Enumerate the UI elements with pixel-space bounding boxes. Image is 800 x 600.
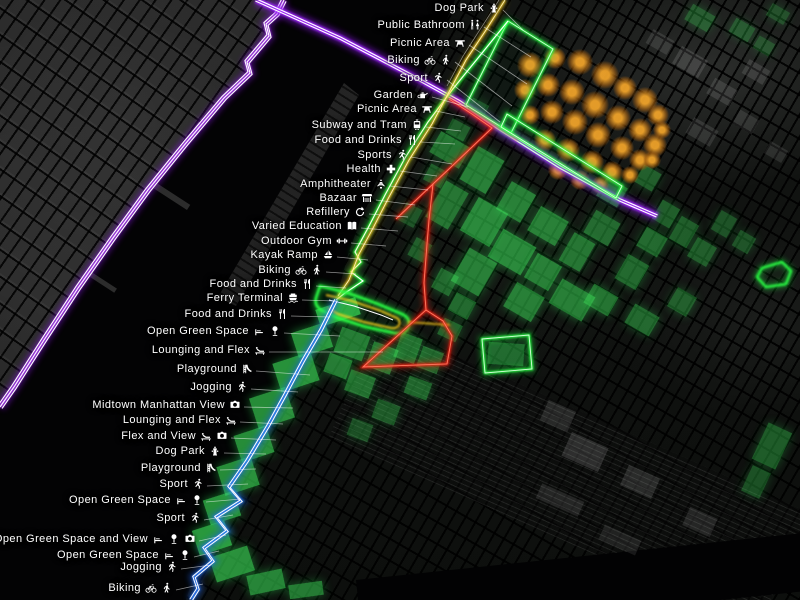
green-highlight-block <box>291 322 333 358</box>
amenity-label: Picnic Area <box>357 103 433 115</box>
label-leader-line <box>361 228 398 231</box>
green-highlight-block <box>766 3 790 25</box>
amenity-label-text: Biking <box>258 264 291 276</box>
label-leader-line <box>436 111 465 117</box>
purple-promenade-route <box>0 0 286 408</box>
amenity-label: Kayak Ramp <box>251 249 334 261</box>
pier <box>89 272 117 293</box>
label-leader-line <box>455 62 512 106</box>
foliage-cluster <box>567 49 593 75</box>
green-highlight-block <box>559 232 596 272</box>
foliage-cluster <box>601 161 623 183</box>
green-highlight-block <box>596 176 628 207</box>
blue-waterfront-route <box>190 299 338 600</box>
green-highlight-block <box>460 197 508 247</box>
restroom-icon <box>469 19 481 31</box>
amenity-label: Garden <box>374 89 429 101</box>
amenity-label-text: Picnic Area <box>390 37 450 49</box>
amenity-label-text: Picnic Area <box>357 103 417 115</box>
slide-icon <box>241 363 253 375</box>
foliage-cluster <box>605 105 631 131</box>
light-roof-block <box>540 400 576 432</box>
label-leader-line <box>469 45 527 84</box>
amenity-label-text: Public Bathroom <box>378 19 465 31</box>
green-highlight-block <box>496 181 536 223</box>
lounge-chair-icon <box>225 414 237 426</box>
athlete-icon <box>189 512 201 524</box>
amenity-label-text: Sports <box>358 149 393 161</box>
green-highlight-block <box>527 206 569 246</box>
amenity-label: Open Green Space <box>69 494 203 506</box>
amenity-label: Dog Park <box>435 2 500 14</box>
hydrant-icon <box>488 2 500 14</box>
label-leader-line <box>411 157 452 164</box>
label-leader-line <box>204 515 233 520</box>
green-highlight-block <box>753 35 776 56</box>
manhattan-landmass <box>0 0 800 600</box>
green-highlight-block <box>460 146 505 194</box>
market-stall-icon <box>361 192 373 204</box>
green-highlight-block <box>667 287 697 317</box>
amenity-label: Outdoor Gym <box>261 235 348 247</box>
amenity-label: Jogging <box>190 381 248 393</box>
green-highlight-block <box>272 352 319 393</box>
amenity-label: Sports <box>358 149 409 161</box>
slide-icon <box>205 462 217 474</box>
amenity-label-text: Subway and Tram <box>312 119 407 131</box>
map-canvas: Dog ParkPublic BathroomPicnic AreaBiking… <box>0 0 800 600</box>
foliage-cluster <box>591 61 619 89</box>
railyard <box>329 322 800 600</box>
medical-cross-icon <box>385 163 397 175</box>
light-roof-block <box>620 465 660 499</box>
green-highlight-block <box>752 422 792 469</box>
green-park-loops <box>466 21 791 373</box>
green-highlight-block <box>431 268 459 297</box>
picnic-table-icon <box>454 37 466 49</box>
green-highlight-block <box>669 216 699 249</box>
label-leader-line <box>256 371 310 375</box>
amenity-label-text: Garden <box>374 89 413 101</box>
light-roof-block <box>536 483 585 516</box>
amenity-label: Lounging and Flex <box>123 414 237 426</box>
green-highlight-block <box>407 237 432 263</box>
amenity-label: Open Green Space <box>57 549 191 561</box>
label-leader-line <box>302 300 336 301</box>
utensils-icon <box>276 308 288 320</box>
label-leader-line <box>316 286 346 288</box>
green-highlight-block <box>404 375 433 400</box>
foliage-cluster <box>628 118 652 142</box>
amenity-label-text: Open Green Space <box>57 549 159 561</box>
green-highlight-block <box>425 180 469 229</box>
amenity-label: Subway and Tram <box>312 119 423 131</box>
amenity-label: Amphitheater <box>300 178 387 190</box>
foliage-cluster <box>653 121 671 139</box>
green-highlight-block <box>684 4 716 33</box>
green-highlight-block <box>636 226 668 257</box>
junction-magenta-segment <box>468 108 518 140</box>
amenity-label-text: Biking <box>387 54 420 66</box>
label-leader-line <box>194 551 219 557</box>
amenity-label: Open Green Space <box>147 325 281 337</box>
green-highlight-block <box>246 568 285 595</box>
bench-icon <box>163 549 175 561</box>
light-roof-block <box>598 525 641 556</box>
green-highlight-block <box>487 342 524 366</box>
amenity-label: Food and Drinks <box>185 308 288 320</box>
foliage-cluster <box>647 104 669 126</box>
green-highlight-block <box>429 131 470 169</box>
amenity-label: Playground <box>141 462 217 474</box>
green-highlight-block <box>652 199 680 228</box>
green-highlight-block <box>524 253 562 291</box>
amenity-label: Food and Drinks <box>210 278 313 290</box>
athlete-icon <box>192 478 204 490</box>
label-leader-line <box>199 535 226 541</box>
amenity-label-text: Food and Drinks <box>315 134 402 146</box>
green-highlight-block <box>333 327 370 362</box>
green-highlight-block <box>192 520 232 555</box>
amenity-label-text: Varied Education <box>252 220 342 232</box>
green-highlight-block <box>347 418 374 442</box>
bench-icon <box>152 533 164 545</box>
tree-icon <box>179 549 191 561</box>
label-leader-line <box>231 438 276 440</box>
foliage-cluster <box>610 136 634 160</box>
amenity-label-text: Midtown Manhattan View <box>92 399 225 411</box>
amenity-label: Open Green Space and View <box>0 533 196 545</box>
label-leader-line <box>176 584 203 590</box>
light-roof-block <box>742 59 771 85</box>
athlete-icon <box>396 149 408 161</box>
lounge-chair-icon <box>200 430 212 442</box>
amenity-label: Playground <box>177 363 253 375</box>
foliage-cluster <box>621 166 639 184</box>
jogger-icon <box>166 561 178 573</box>
green-highlight-block <box>687 237 717 267</box>
bicycle-icon <box>145 582 157 594</box>
boat-icon <box>322 249 334 261</box>
green-highlight-block <box>323 352 352 379</box>
green-highlight-block <box>448 292 477 320</box>
green-highlight-block <box>711 210 738 238</box>
label-leader-lines <box>0 0 800 600</box>
hydrant-icon <box>209 445 221 457</box>
light-roof-block <box>682 507 718 537</box>
label-leader-line <box>224 453 266 454</box>
foliage-cluster <box>643 133 667 157</box>
newtown-creek-water <box>356 532 800 600</box>
athlete-icon <box>432 72 444 84</box>
foliage-cluster <box>632 87 658 113</box>
green-highlight-block <box>437 318 463 343</box>
amenity-label: Sport <box>156 512 201 524</box>
light-roof-block <box>732 110 759 135</box>
amenity-label-text: Dog Park <box>435 2 484 14</box>
tree-icon <box>269 325 281 337</box>
amenity-label-text: Lounging and Flex <box>152 344 250 356</box>
amenity-label-text: Playground <box>177 363 237 375</box>
ferry-icon <box>287 292 299 304</box>
tree-icon <box>191 494 203 506</box>
bicycle-icon <box>424 54 436 66</box>
dumbbell-icon <box>336 235 348 247</box>
amenity-label-text: Ferry Terminal <box>207 292 283 304</box>
foliage-cluster <box>643 151 661 169</box>
green-highlight-block <box>234 425 275 462</box>
amenity-label-text: Kayak Ramp <box>251 249 318 261</box>
amenity-label-text: Sport <box>156 512 185 524</box>
camera-icon <box>216 430 228 442</box>
amenity-label-text: Amphitheater <box>300 178 371 190</box>
green-highlight-block <box>423 163 449 188</box>
green-highlight-block <box>624 303 659 336</box>
amenity-label: Health <box>347 163 398 175</box>
foliage-cluster <box>520 105 540 125</box>
highlighted-blocks-layer <box>0 0 800 600</box>
label-leader-line <box>181 565 211 569</box>
utensils-icon <box>301 278 313 290</box>
red-outline-route <box>363 99 492 367</box>
foliage-cluster <box>591 176 609 194</box>
amenity-label: Varied Education <box>252 220 358 232</box>
light-roof-block <box>672 46 708 78</box>
foliage-cluster <box>629 149 651 171</box>
foliage-cluster <box>556 138 580 162</box>
label-leader-line <box>503 10 523 30</box>
amenity-label: Sport <box>159 478 204 490</box>
green-highlight-block <box>615 254 650 290</box>
amenity-label-text: Food and Drinks <box>185 308 272 320</box>
pedestrian-icon <box>161 582 173 594</box>
tree-icon <box>168 533 180 545</box>
amenity-label: Ferry Terminal <box>207 292 299 304</box>
foliage-cluster <box>517 52 543 78</box>
amenity-label: Dog Park <box>156 445 221 457</box>
green-highlight-block <box>393 332 423 364</box>
label-leader-line <box>337 257 368 260</box>
amenity-label-text: Jogging <box>120 561 162 573</box>
camera-icon <box>229 399 241 411</box>
green-highlight-block <box>365 341 398 374</box>
amenity-label: Picnic Area <box>390 37 466 49</box>
green-highlight-block <box>203 491 241 526</box>
bench-icon <box>253 325 265 337</box>
label-leader-line <box>432 97 468 107</box>
queens-landmass <box>0 0 800 600</box>
amenity-label: Refillery <box>306 206 366 218</box>
light-roof-block <box>561 432 608 472</box>
foliage-cluster <box>514 79 536 101</box>
label-leader-line <box>447 80 500 122</box>
amenity-label-text: Bazaar <box>319 192 357 204</box>
bench-icon <box>175 494 187 506</box>
foliage-cluster <box>559 79 585 105</box>
amenity-label-text: Jogging <box>190 381 232 393</box>
amenity-label: Public Bathroom <box>378 19 481 31</box>
picnic-table-icon <box>421 103 433 115</box>
amenity-label-text: Food and Drinks <box>210 278 297 290</box>
amenity-label-text: Health <box>347 163 382 175</box>
amenity-label: Food and Drinks <box>315 134 418 146</box>
green-highlight-block <box>503 282 545 322</box>
label-leader-line <box>207 484 248 486</box>
amenity-label: Biking <box>108 582 173 594</box>
foliage-cluster <box>570 170 590 190</box>
label-leader-line <box>376 200 415 205</box>
pier <box>152 182 190 210</box>
label-leader-line <box>369 214 408 217</box>
yellow-connector-route <box>338 0 505 296</box>
foliage-cluster <box>536 73 560 97</box>
green-highlight-block <box>288 581 324 600</box>
amenity-label-text: Sport <box>159 478 188 490</box>
pedestrian-icon <box>311 264 323 276</box>
amenity-labels-layer: Dog ParkPublic BathroomPicnic AreaBiking… <box>0 0 800 600</box>
label-leader-line <box>390 186 428 190</box>
amenity-label-text: Flex and View <box>121 430 196 442</box>
bicycle-icon <box>295 264 307 276</box>
amenity-label-text: Open Green Space and View <box>0 533 148 545</box>
green-highlight-block <box>583 210 620 247</box>
foliage-cluster <box>544 47 566 69</box>
green-highlight-block <box>741 465 771 499</box>
green-highlight-block <box>728 18 755 43</box>
label-leader-line <box>244 407 293 408</box>
amenity-label-text: Open Green Space <box>69 494 171 506</box>
light-roof-block <box>706 78 738 107</box>
foliage-cluster <box>613 76 637 100</box>
foliage-cluster <box>562 109 588 135</box>
green-highlight-block <box>397 202 422 228</box>
watering-can-icon <box>417 89 429 101</box>
purple-bridge-route <box>255 0 657 217</box>
foliage-cluster <box>585 122 611 148</box>
label-leader-line <box>206 499 241 502</box>
foliage-cluster <box>548 160 568 180</box>
roosevelt-island <box>0 0 800 600</box>
green-highlight-block <box>249 387 295 429</box>
utensils-icon <box>406 134 418 146</box>
green-highlight-block <box>416 346 444 374</box>
green-highlight-block <box>732 230 757 255</box>
label-leader-line <box>220 469 256 470</box>
lounge-chair-icon <box>254 344 266 356</box>
label-leader-line <box>240 422 283 424</box>
label-leader-line <box>351 243 386 246</box>
camera-icon <box>184 533 196 545</box>
amenity-label-text: Outdoor Gym <box>261 235 332 247</box>
light-roof-block <box>764 141 788 163</box>
label-leader-line <box>421 142 455 144</box>
amenity-label: Jogging <box>120 561 178 573</box>
green-highlight-block <box>488 229 537 276</box>
foliage-cluster <box>581 91 609 119</box>
label-leader-line <box>400 171 437 176</box>
amenity-label-text: Refillery <box>306 206 350 218</box>
amenity-label-text: Lounging and Flex <box>123 414 221 426</box>
label-leader-line <box>484 27 531 57</box>
foliage-cluster <box>540 100 564 124</box>
pedestrian-icon <box>440 54 452 66</box>
green-highlight-block <box>315 297 361 327</box>
light-roof-block <box>685 117 718 147</box>
amenity-label: Flex and View <box>121 430 228 442</box>
green-highlight-block <box>445 118 470 142</box>
green-highlight-block <box>549 278 596 321</box>
green-highlight-block <box>344 369 376 399</box>
label-leader-line <box>291 316 330 317</box>
green-highlight-block <box>209 545 255 582</box>
amenity-label-text: Dog Park <box>156 445 205 457</box>
foliage-cluster <box>580 150 604 174</box>
amenity-label: Biking <box>258 264 323 276</box>
green-highlight-block <box>634 164 661 191</box>
amenity-label-text: Open Green Space <box>147 325 249 337</box>
road-line <box>447 0 499 86</box>
amenity-label-text: Playground <box>141 462 201 474</box>
green-highlight-block <box>583 283 618 316</box>
green-highlight-block <box>371 398 400 425</box>
basin-loop-route <box>316 286 450 333</box>
foliage-cluster <box>534 129 556 151</box>
amenity-label: Biking <box>387 54 452 66</box>
amphitheater-icon <box>375 178 387 190</box>
green-street-route <box>336 21 508 300</box>
recycle-icon <box>354 206 366 218</box>
amenity-label: Lounging and Flex <box>152 344 266 356</box>
green-highlight-block <box>216 456 260 496</box>
amenity-label-text: Sport <box>399 72 428 84</box>
green-highlight-block <box>451 248 498 297</box>
label-leader-line <box>426 127 461 131</box>
amenity-label-text: Biking <box>108 582 141 594</box>
book-icon <box>346 220 358 232</box>
jogger-icon <box>236 381 248 393</box>
light-roof-block <box>646 29 675 55</box>
label-leader-line <box>251 389 298 392</box>
green-highlight-block <box>467 98 489 119</box>
label-leader-line <box>326 272 356 274</box>
tram-icon <box>411 119 423 131</box>
amenity-label: Sport <box>399 72 444 84</box>
route-overlays <box>0 0 800 600</box>
foliage-pattern-layer <box>0 0 800 600</box>
label-leader-line <box>284 333 340 336</box>
amenity-label: Bazaar <box>319 192 373 204</box>
amenity-label: Midtown Manhattan View <box>92 399 241 411</box>
